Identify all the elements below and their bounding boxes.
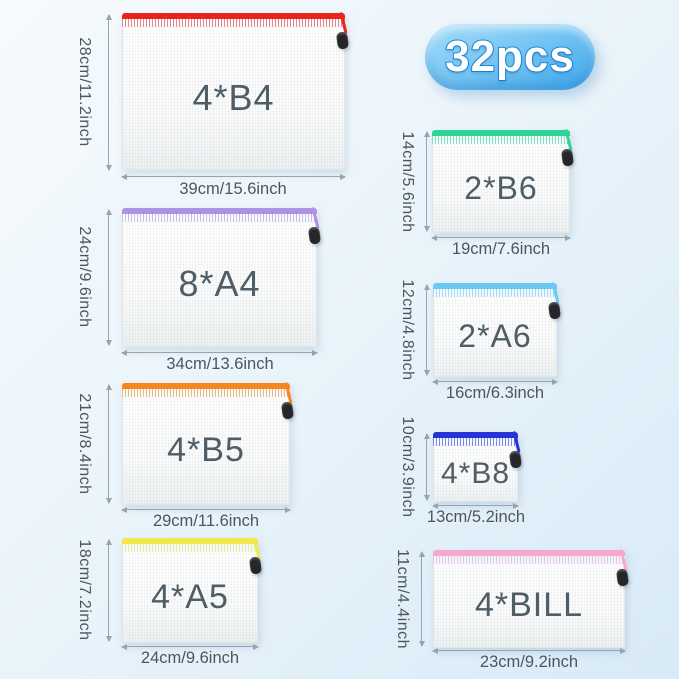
zipper-teeth: [433, 438, 518, 446]
width-dimension-label: 24cm/9.6inch: [141, 649, 239, 668]
height-dimension-line: [426, 132, 427, 231]
bag-size-label: 4*B8: [441, 457, 510, 491]
height-dimension-line: [426, 434, 427, 500]
zipper-teeth: [122, 19, 345, 27]
bag-4b4: 4*B4: [122, 13, 345, 170]
zipper-teeth: [433, 289, 557, 297]
width-dimension-line: [122, 646, 258, 647]
product-size-diagram: 32pcs 4*B4 28cm/11.2inch 39cm/15.6inch 8…: [0, 0, 679, 679]
height-dimension-label: 28cm/11.2inch: [75, 37, 93, 146]
width-dimension-label: 34cm/13.6inch: [166, 355, 273, 374]
width-dimension-label: 19cm/7.6inch: [452, 240, 550, 259]
bag-size-label: 2*A6: [458, 318, 531, 355]
bag-body: 2*B6: [432, 144, 570, 233]
bag-2b6: 2*B6: [432, 130, 570, 233]
width-dimension-line: [433, 505, 518, 506]
width-dimension-label: 16cm/6.3inch: [446, 384, 544, 403]
width-dimension-line: [433, 650, 625, 651]
height-dimension-line: [426, 285, 427, 375]
bag-4bill: 4*BILL: [433, 550, 625, 648]
height-dimension-label: 21cm/8.4inch: [75, 393, 93, 494]
bag-size-label: 4*B4: [192, 77, 274, 119]
zipper-teeth: [122, 214, 317, 222]
height-dimension-label: 18cm/7.2inch: [75, 539, 93, 640]
width-dimension-label: 23cm/9.2inch: [480, 653, 578, 672]
height-dimension-label: 14cm/5.6inch: [398, 131, 416, 232]
bag-8a4: 8*A4: [122, 208, 317, 347]
bag-body: 4*A5: [122, 552, 258, 643]
bag-body: 4*B4: [122, 27, 345, 170]
width-dimension-line: [432, 237, 570, 238]
bag-size-label: 4*BILL: [475, 586, 583, 625]
zipper-teeth: [432, 136, 570, 144]
height-dimension-line: [108, 385, 109, 503]
bag-body: 4*B5: [122, 397, 290, 505]
width-dimension-label: 29cm/11.6inch: [153, 512, 259, 531]
bag-body: 4*BILL: [433, 564, 625, 648]
height-dimension-label: 10cm/3.9inch: [398, 416, 416, 517]
bag-body: 4*B8: [433, 446, 518, 502]
height-dimension-line: [108, 15, 109, 170]
bag-body: 8*A4: [122, 222, 317, 347]
bag-4a5: 4*A5: [122, 538, 258, 643]
width-dimension-label: 39cm/15.6inch: [179, 180, 286, 199]
width-dimension-line: [122, 176, 345, 177]
zipper-teeth: [122, 544, 258, 552]
height-dimension-line: [108, 210, 109, 345]
height-dimension-line: [421, 552, 422, 646]
bag-4b8: 4*B8: [433, 432, 518, 502]
bag-size-label: 4*B5: [167, 431, 245, 470]
zipper-teeth: [433, 556, 625, 564]
bag-size-label: 4*A5: [151, 578, 229, 617]
width-dimension-line: [433, 381, 557, 382]
bag-size-label: 8*A4: [178, 263, 260, 305]
width-dimension-line: [122, 352, 317, 353]
bag-2a6: 2*A6: [433, 283, 557, 377]
height-dimension-label: 24cm/9.6inch: [75, 226, 93, 327]
height-dimension-label: 11cm/4.4inch: [393, 549, 411, 649]
piece-count-label: 32pcs: [445, 32, 575, 82]
piece-count-badge: 32pcs: [425, 24, 595, 90]
bag-size-label: 2*B6: [464, 170, 537, 207]
height-dimension-label: 12cm/4.8inch: [398, 279, 416, 380]
width-dimension-line: [122, 509, 290, 510]
zipper-teeth: [122, 389, 290, 397]
bag-body: 2*A6: [433, 297, 557, 377]
height-dimension-line: [108, 540, 109, 641]
bag-4b5: 4*B5: [122, 383, 290, 505]
width-dimension-label: 13cm/5.2inch: [427, 508, 525, 527]
